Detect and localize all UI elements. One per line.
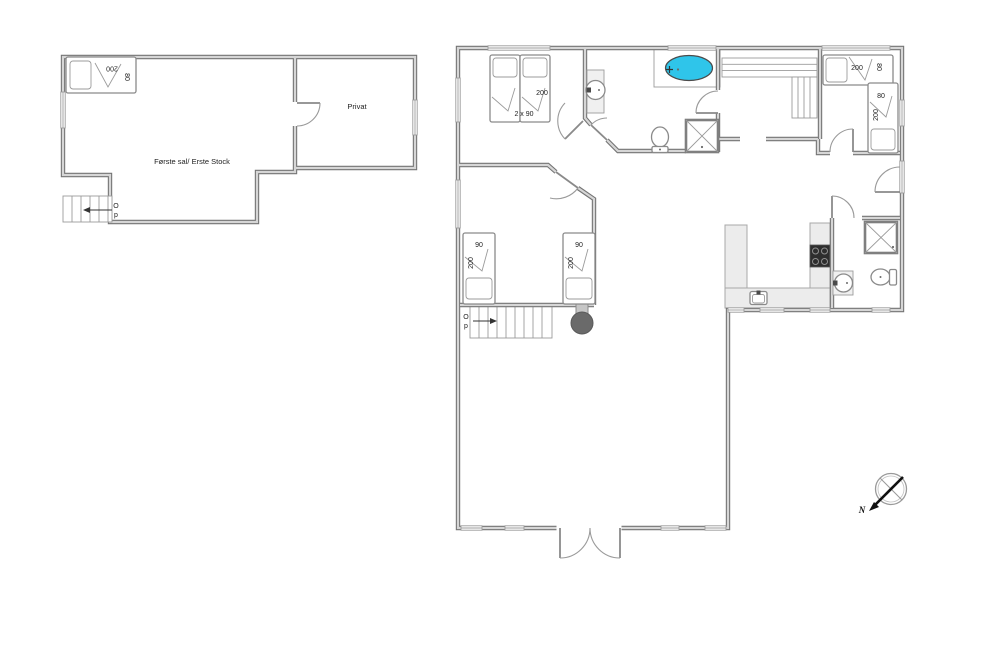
first-floor-room-label: Første sal/ Erste Stock <box>154 157 230 166</box>
kitchen-counter-bottom <box>725 288 830 308</box>
washbasin2-tap-icon <box>833 281 838 286</box>
right-bed-top-width-label: 80 <box>875 63 882 71</box>
stairs-ground-floor <box>470 306 552 338</box>
toilet1-dot <box>659 149 661 151</box>
double-bed-size-label: 2 x 90 <box>514 111 533 118</box>
kitchen-counter-left <box>725 225 747 290</box>
single-bed-left-length-label: 200 <box>468 257 475 269</box>
right-bed-side-width-label: 80 <box>877 93 885 100</box>
right-bed-top-length-label: 200 <box>851 65 863 72</box>
stairs-upper-run <box>722 58 817 77</box>
ff-bed-width-label: 80 <box>123 73 130 81</box>
washbasin1-tap-icon <box>587 88 592 93</box>
front-door-arcs <box>560 528 620 558</box>
single-bed-right-length-label: 200 <box>568 257 575 269</box>
toilet2-tank <box>890 270 897 286</box>
ff-stairs-letter-p: p <box>114 212 118 219</box>
shower1-drain-dot <box>701 146 703 148</box>
north-label: N <box>858 505 866 515</box>
toilet1-bowl-icon <box>652 127 669 147</box>
wood-stove-icon <box>571 312 593 334</box>
front-door-opening <box>557 525 622 532</box>
toilet2-dot <box>880 276 882 278</box>
washbasin2-drain-dot <box>846 282 848 284</box>
whirlpool-tub-icon <box>666 56 713 81</box>
single-bed-right-width-label: 90 <box>575 242 583 249</box>
double-bed-length-label: 200 <box>536 90 548 97</box>
floorplan-canvas: Første sal/ Erste Stock Privat 200 80 O … <box>0 0 1000 645</box>
compass: N <box>858 474 907 516</box>
gf-stairs-letter-o: O <box>463 314 469 321</box>
stairs-side-run <box>792 77 817 118</box>
single-bed-left-width-label: 90 <box>475 242 483 249</box>
right-bed-side-length-label: 200 <box>873 109 880 121</box>
washbasin1-drain-dot <box>598 89 600 91</box>
kitchen-faucet-icon <box>757 291 761 295</box>
privat-room-label: Privat <box>347 102 367 111</box>
first-floor-stairs <box>63 196 112 222</box>
living-room-stairs <box>470 306 552 338</box>
ff-bed-length-label: 200 <box>106 65 118 72</box>
floorplan-page: Første sal/ Erste Stock Privat 200 80 O … <box>0 0 1000 645</box>
shower2-drain-dot <box>892 246 894 248</box>
ff-stairs-letter-o: O <box>113 203 119 210</box>
tub-drain-dot <box>677 68 679 70</box>
gf-stairs-letter-p: p <box>464 323 468 330</box>
